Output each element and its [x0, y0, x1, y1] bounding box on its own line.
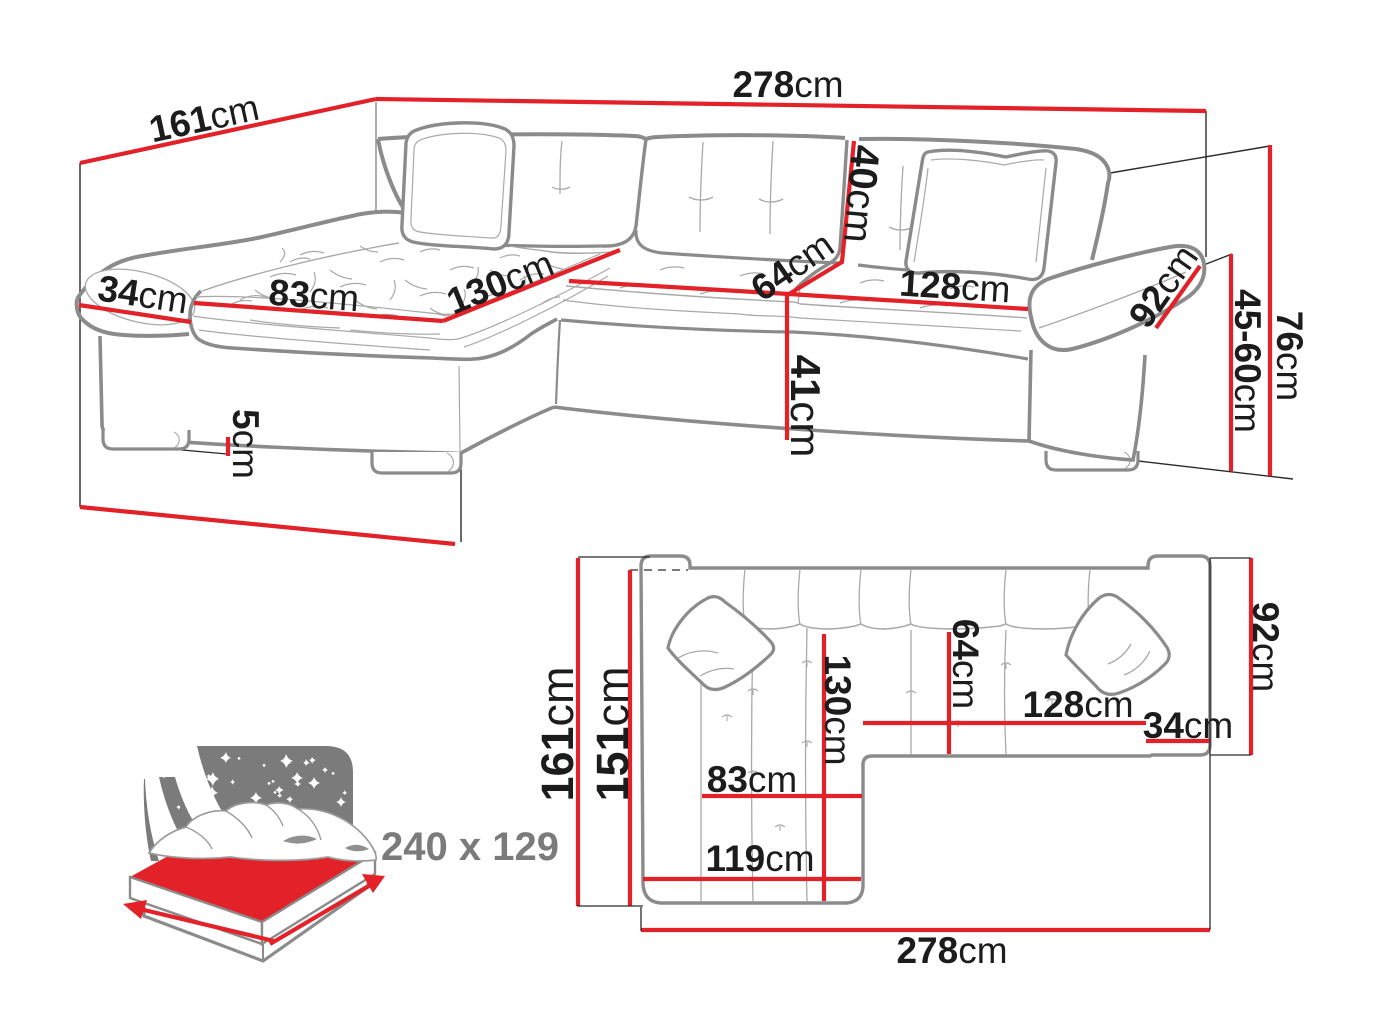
- svg-text:5cm: 5cm: [225, 409, 266, 479]
- svg-text:76cm: 76cm: [1269, 311, 1310, 401]
- svg-text:119cm: 119cm: [705, 838, 814, 879]
- svg-text:130cm: 130cm: [817, 654, 858, 765]
- svg-text:64cm: 64cm: [945, 619, 986, 709]
- svg-text:278cm: 278cm: [732, 64, 843, 105]
- svg-text:34cm: 34cm: [1143, 705, 1233, 746]
- svg-text:83cm: 83cm: [707, 759, 797, 800]
- svg-text:41cm: 41cm: [782, 355, 829, 458]
- svg-text:83cm: 83cm: [267, 272, 360, 320]
- svg-text:128cm: 128cm: [898, 263, 1011, 311]
- svg-text:240 x 129: 240 x 129: [381, 825, 559, 869]
- svg-text:278cm: 278cm: [896, 930, 1007, 971]
- svg-text:151cm: 151cm: [587, 666, 638, 801]
- svg-text:45-60cm: 45-60cm: [1227, 289, 1268, 433]
- svg-text:128cm: 128cm: [1022, 684, 1133, 725]
- svg-text:161cm: 161cm: [532, 666, 583, 801]
- svg-text:92cm: 92cm: [1245, 602, 1286, 692]
- svg-text:40cm: 40cm: [835, 143, 887, 244]
